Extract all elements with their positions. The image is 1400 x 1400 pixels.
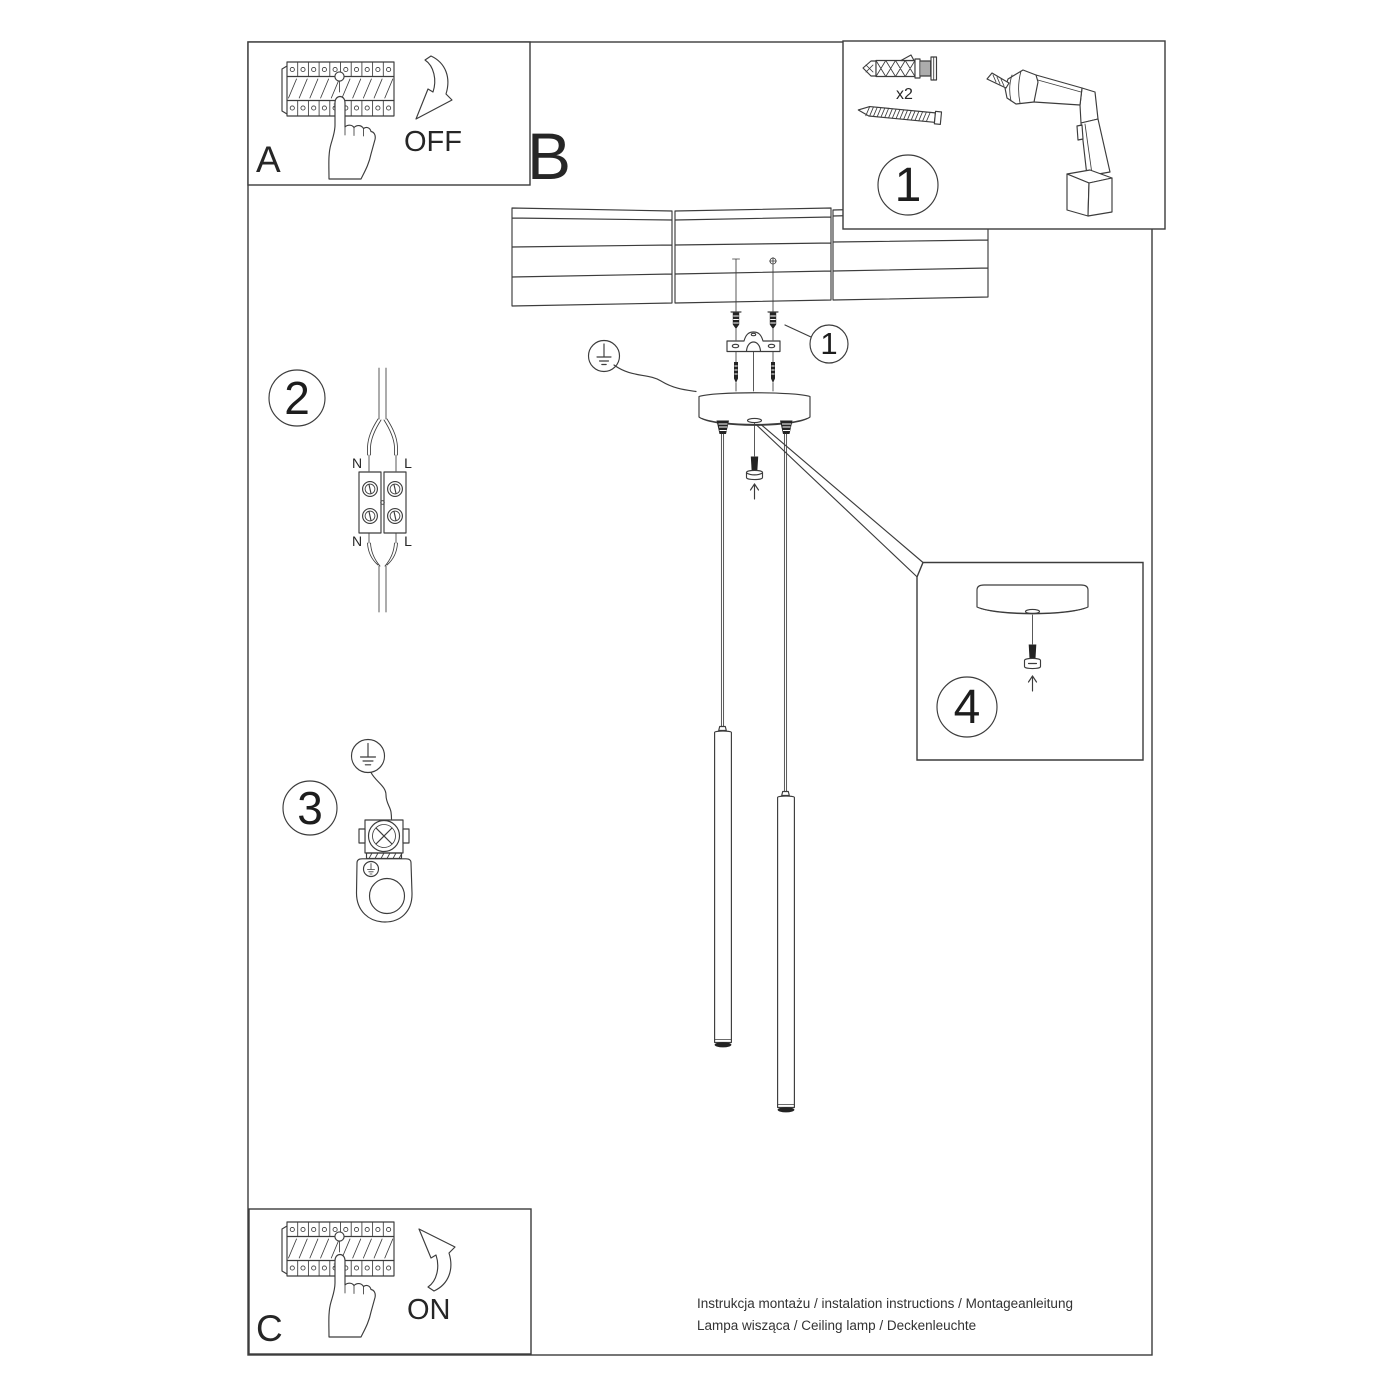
power-on-box bbox=[249, 1209, 531, 1354]
power-off-box bbox=[248, 42, 530, 185]
box-a-action-label: OFF bbox=[404, 126, 462, 159]
section-b-label: B bbox=[527, 118, 571, 194]
step2-badge: 2 bbox=[269, 370, 325, 426]
instruction-art bbox=[0, 0, 1400, 1400]
instruction-sheet: A OFF B C ON x2 1 1 2 3 4 N L N L Instru… bbox=[0, 0, 1400, 1400]
pendant-tube-right bbox=[778, 792, 795, 1113]
terminal-screws bbox=[363, 482, 403, 524]
mounting-plate-icon bbox=[357, 859, 413, 922]
mounting-bracket-icon bbox=[727, 332, 780, 352]
footer-text: Instrukcja montażu / instalation instruc… bbox=[697, 1293, 1073, 1337]
mounting-screw-icon bbox=[734, 362, 775, 383]
mounting-callout: 1 bbox=[810, 325, 848, 363]
footer-line-1: Instrukcja montażu / instalation instruc… bbox=[697, 1293, 1073, 1315]
wall-anchor-icon bbox=[731, 312, 778, 329]
up-arrow-icon bbox=[751, 484, 759, 499]
canopy-illustration bbox=[699, 393, 923, 1113]
anchor-quantity-label: x2 bbox=[896, 86, 913, 104]
step3-badge: 3 bbox=[282, 780, 338, 836]
box-a-label: A bbox=[256, 139, 281, 181]
pendant-tube-left bbox=[715, 727, 732, 1048]
box-c-action-label: ON bbox=[407, 1294, 451, 1327]
callout-1-leader bbox=[785, 325, 811, 337]
ground-terminal-icon bbox=[359, 820, 409, 859]
detail-leader-lines bbox=[755, 422, 923, 578]
ground-symbol-icon bbox=[589, 341, 697, 392]
terminal-label-n-bottom: N bbox=[348, 533, 366, 549]
box-c-label: C bbox=[256, 1308, 283, 1350]
step4-badge: 4 bbox=[937, 677, 997, 737]
terminal-label-l-bottom: L bbox=[399, 533, 417, 549]
terminal-label-l-top: L bbox=[399, 455, 417, 471]
terminal-label-n-top: N bbox=[348, 455, 366, 471]
canopy-screw-icon bbox=[747, 457, 763, 500]
tools-badge: 1 bbox=[878, 155, 938, 215]
footer-line-2: Lampa wisząca / Ceiling lamp / Deckenleu… bbox=[697, 1315, 1073, 1337]
